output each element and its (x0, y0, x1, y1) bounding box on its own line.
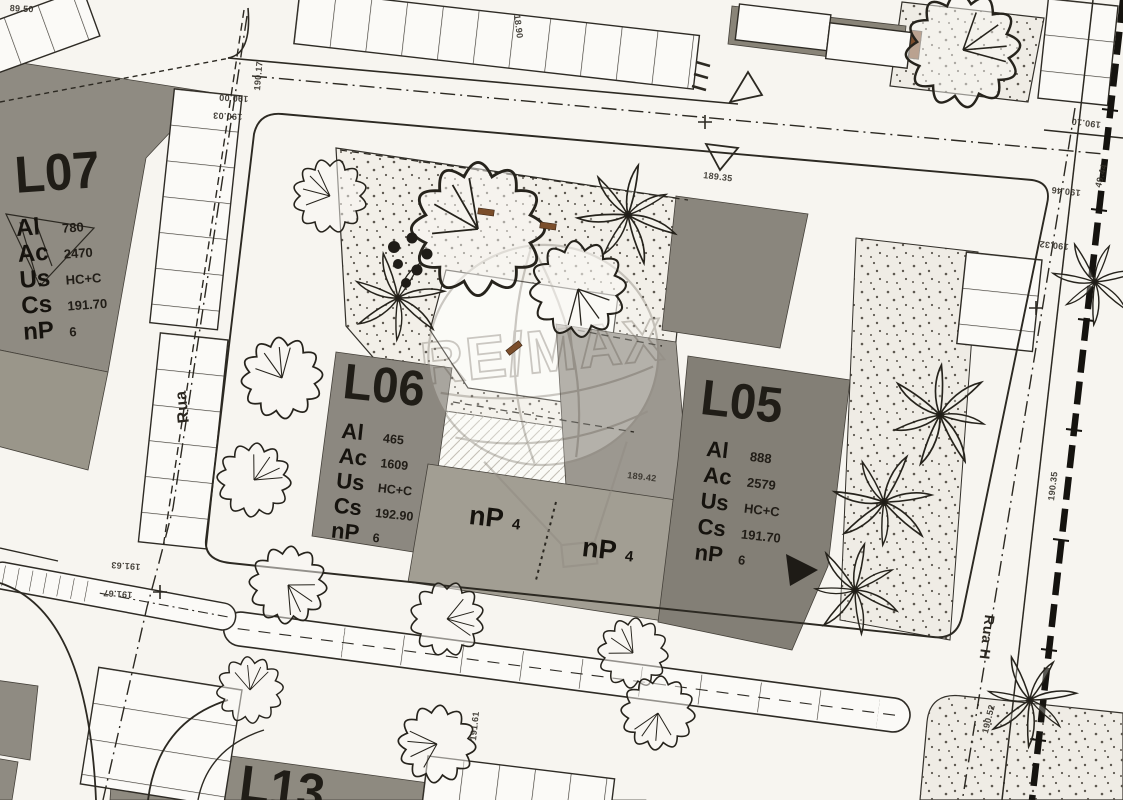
spot-elevation: 190.03 (213, 110, 243, 122)
lot-l06-table: Al465 Ac1609 UsHC+C Cs192.90 nP6 (330, 418, 423, 551)
lot-attr-value: 191.70 (740, 526, 781, 545)
lot-attr-value: HC+C (377, 481, 413, 499)
lot-l05-table: Al888 Ac2579 UsHC+C Cs191.70 nP6 (693, 436, 791, 575)
spot-elevation: 191.63 (111, 560, 141, 572)
lot-attr-value: HC+C (65, 270, 102, 287)
plan-linework: RE/MAX (0, 0, 1123, 800)
site-plan-map: RE/MAX L07 Al780 Ac247 (0, 0, 1123, 800)
lot-l05-title: L05 (698, 372, 785, 431)
median-parking-strip (222, 610, 913, 734)
spot-elevation: 190.00 (219, 92, 249, 104)
sublot-np4-a: nP4 (467, 500, 522, 537)
building-edge-left-a (0, 680, 38, 760)
lot-attr-value: 2470 (63, 245, 93, 262)
lot-l07-title: L07 (13, 144, 102, 202)
sublot-value: 4 (511, 516, 521, 534)
lot-attr-value: HC+C (743, 501, 780, 520)
tree-icon (208, 434, 300, 526)
sublot-key: nP (581, 532, 619, 566)
lot-attr-value: 6 (69, 324, 77, 339)
lot-attr-value: 465 (382, 431, 404, 447)
sublot-np4-b: nP4 (580, 532, 635, 569)
lot-attr-value: 192.90 (375, 506, 414, 524)
lot-attr-value: 888 (749, 449, 772, 466)
spot-elevation: 89.50 (9, 3, 34, 14)
tree-icon (294, 160, 366, 232)
lot-attr-value: 6 (737, 552, 746, 568)
lot-attr-key: nP (330, 517, 374, 547)
building-outline-top (734, 4, 912, 68)
lot-attr-key: nP (22, 316, 70, 347)
lot-attr-key: nP (693, 539, 740, 570)
sublot-value: 4 (624, 548, 634, 566)
lot-l06-title: L06 (341, 356, 428, 414)
building-edge-left-b (0, 758, 18, 800)
lot-attr-value: 2579 (746, 475, 776, 493)
spot-elevation: 191.67 (103, 588, 133, 600)
lot-attr-value: 6 (372, 531, 380, 546)
street-name-left: Rua (173, 389, 194, 424)
lot-attr-value: 1609 (380, 456, 409, 473)
lot-l13-title: L13 (237, 758, 328, 800)
building-l05-upper (662, 196, 808, 348)
tree-icon (226, 322, 337, 433)
lot-attr-value: 191.70 (67, 296, 108, 314)
lot-attr-value: 780 (62, 219, 85, 235)
sublot-key: nP (468, 500, 506, 534)
lot-l07-table: Al780 Ac2470 UsHC+C Cs191.70 nP6 (15, 209, 110, 345)
